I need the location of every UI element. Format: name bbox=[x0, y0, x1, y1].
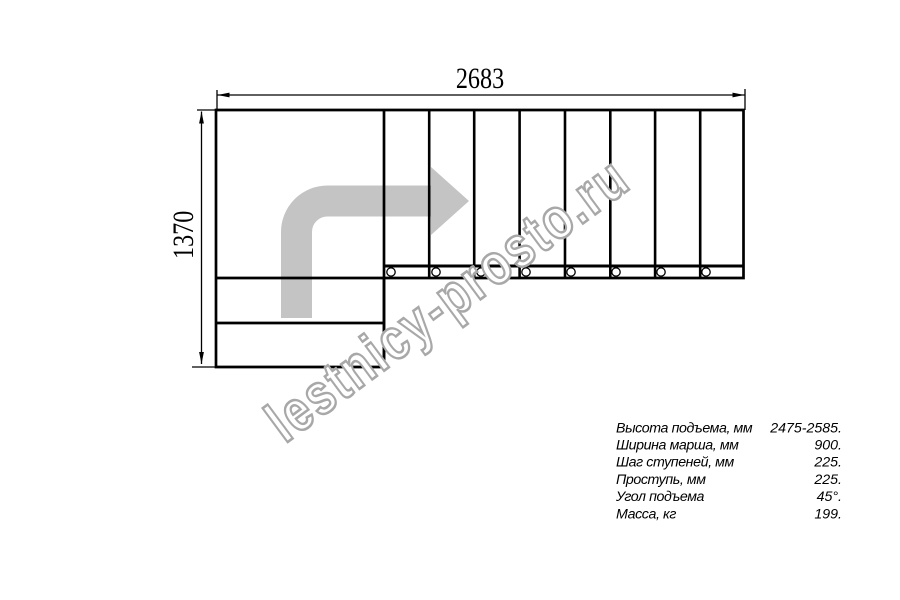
svg-text:199.: 199. bbox=[814, 506, 842, 522]
svg-text:900.: 900. bbox=[814, 438, 842, 454]
svg-text:Проступь, мм: Проступь, мм bbox=[616, 472, 706, 488]
svg-text:45°.: 45°. bbox=[817, 489, 842, 505]
svg-text:2683: 2683 bbox=[456, 62, 504, 95]
svg-text:Высота подъема, мм: Высота подъема, мм bbox=[616, 420, 753, 436]
svg-text:Шаг ступеней, мм: Шаг ступеней, мм bbox=[616, 455, 734, 471]
svg-text:1370: 1370 bbox=[167, 211, 200, 259]
svg-text:2475-2585.: 2475-2585. bbox=[769, 420, 842, 436]
svg-text:Угол подъема: Угол подъема bbox=[615, 489, 705, 505]
svg-text:225.: 225. bbox=[813, 455, 842, 471]
svg-text:225.: 225. bbox=[813, 472, 842, 488]
svg-text:Масса, кг: Масса, кг bbox=[616, 506, 676, 522]
svg-text:Ширина марша, мм: Ширина марша, мм bbox=[616, 438, 739, 454]
